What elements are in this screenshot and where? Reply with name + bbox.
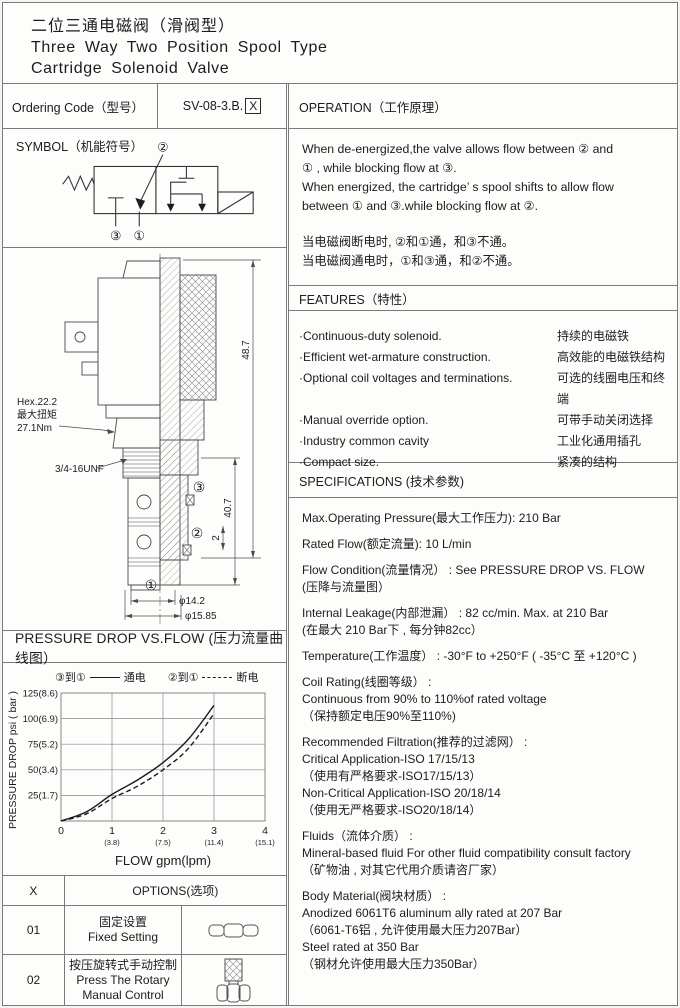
page-title-en-2: Cartridge Solenoid Valve bbox=[31, 58, 667, 79]
hex-nut-icon bbox=[207, 921, 261, 939]
spec-filtration: Recommended Filtration(推荐的过滤网） : Critica… bbox=[302, 734, 667, 819]
operation-zh-line: 当电磁阀断电时, ②和①通，和③不通。 bbox=[302, 233, 669, 252]
option-01-description: 固定设置 Fixed Setting bbox=[65, 906, 181, 954]
y-axis-tick-labels: 125(8.6) 100(6.9) 75(5.2) 50(3.4) 25(1.7… bbox=[23, 689, 58, 802]
options-code-header: X bbox=[3, 876, 65, 905]
y-axis-title: PRESSURE DROP psi ( bar ) bbox=[7, 691, 19, 829]
port-2-label: ② bbox=[157, 140, 168, 155]
thread-label: 3/4-16UNF bbox=[55, 464, 104, 475]
x-axis-title: FLOW gpm(lpm) bbox=[115, 853, 211, 868]
knurled-knob-icon bbox=[212, 957, 256, 1003]
option-01-code: 01 bbox=[3, 906, 65, 954]
operation-zh-line: 当电磁阀通电时，①和③通，和②不通。 bbox=[302, 252, 669, 271]
features-header: FEATURES（特性） bbox=[289, 286, 677, 311]
operation-en-line: When energized, the cartridge’ s spool s… bbox=[302, 178, 669, 197]
connector-hole bbox=[75, 332, 85, 342]
title-block: 二位三通电磁阀（滑阀型） Three Way Two Position Spoo… bbox=[3, 3, 677, 84]
legend-ports-energized: ③到① bbox=[55, 669, 86, 685]
dim-40-7: 40.7 bbox=[223, 498, 234, 518]
connector-tab bbox=[82, 362, 98, 375]
feature-item: ·Optional coil voltages and terminations… bbox=[299, 368, 671, 410]
option-row-01: 01 固定设置 Fixed Setting bbox=[3, 906, 286, 955]
svg-text:50(3.4): 50(3.4) bbox=[28, 765, 58, 776]
feature-item: ·Efficient wet-armature construction. 高效… bbox=[299, 347, 671, 368]
ordering-code-value: SV-08-3.B.X bbox=[158, 84, 286, 128]
svg-text:2: 2 bbox=[160, 825, 166, 837]
chart-curve-deenergized bbox=[61, 714, 214, 822]
option-02-description: 按压旋转式手动控制 Press The Rotary Manual Contro… bbox=[65, 955, 181, 1005]
torque-value-label: 27.1Nm bbox=[17, 423, 52, 434]
svg-text:0: 0 bbox=[58, 825, 64, 837]
legend-ports-deenergized: ②到① bbox=[168, 669, 199, 685]
svg-text:3: 3 bbox=[211, 825, 217, 837]
option-01-zh: 固定设置 bbox=[99, 915, 147, 930]
specifications-body: Max.Operating Pressure(最大工作压力): 210 Bar … bbox=[289, 498, 677, 973]
hex-size-label: Hex.22.2 bbox=[17, 397, 57, 408]
section-hatched-half bbox=[160, 258, 216, 585]
pressure-drop-header: PRESSURE DROP VS.FLOW (压力流量曲线图） bbox=[3, 631, 286, 663]
svg-text:(7.5): (7.5) bbox=[155, 838, 171, 847]
left-column: Ordering Code（型号） SV-08-3.B.X SYMBOL（机能符… bbox=[3, 84, 287, 1005]
spring-symbol bbox=[63, 176, 94, 190]
option-02-icon-cell bbox=[181, 955, 286, 1005]
page-title-en-1: Three Way Two Position Spool Type bbox=[31, 37, 667, 58]
pressure-drop-chart: 125(8.6) 100(6.9) 75(5.2) 50(3.4) 25(1.7… bbox=[3, 685, 287, 876]
operation-header: OPERATION（工作原理） bbox=[289, 84, 677, 129]
symbol-port-labels: ② ③ ① bbox=[110, 140, 169, 243]
option-01-icon-cell bbox=[181, 906, 286, 954]
right-column: OPERATION（工作原理） When de-energized,the va… bbox=[289, 84, 677, 1005]
operation-en-line: When de-energized,the valve allows flow … bbox=[302, 140, 669, 159]
page-title-zh: 二位三通电磁阀（滑阀型） bbox=[31, 12, 667, 36]
options-header-row: X OPTIONS(选项) bbox=[3, 876, 286, 906]
chart-grid bbox=[61, 693, 265, 821]
options-title: OPTIONS(选项) bbox=[65, 876, 286, 905]
feature-item: ·Manual override option. 可带手动关闭选择 bbox=[299, 410, 671, 431]
spec-max-pressure: Max.Operating Pressure(最大工作压力): 210 Bar bbox=[302, 510, 667, 527]
spacer bbox=[302, 216, 669, 233]
spec-coil-rating: Coil Rating(线圈等级） : Continuous from 90% … bbox=[302, 674, 667, 725]
option-02-code: 02 bbox=[3, 955, 65, 1005]
dashed-line-swatch bbox=[202, 677, 232, 678]
ordering-code-row: Ordering Code（型号） SV-08-3.B.X bbox=[3, 84, 286, 129]
legend-item-deenergized: ②到① 断电 bbox=[168, 669, 259, 685]
dim-48-7: 48.7 bbox=[241, 340, 252, 360]
solid-line-swatch bbox=[90, 677, 120, 678]
ordering-code-prefix: SV-08-3.B. bbox=[183, 99, 243, 113]
port-3-label: ③ bbox=[110, 228, 121, 243]
chart-curve-energized bbox=[61, 705, 214, 821]
leader-arrowheads bbox=[107, 429, 127, 464]
svg-text:75(5.2): 75(5.2) bbox=[28, 740, 58, 751]
svg-text:(11.4): (11.4) bbox=[204, 838, 224, 847]
legend-state-deenergized: 断电 bbox=[236, 669, 258, 685]
svg-text:4: 4 bbox=[262, 825, 268, 837]
features-list: ·Continuous-duty solenoid. 持续的电磁铁 ·Effic… bbox=[289, 311, 677, 463]
svg-text:100(6.9): 100(6.9) bbox=[23, 714, 58, 725]
option-row-02: 02 按压旋转式手动控制 Press The Rotary Manual Con… bbox=[3, 955, 286, 1005]
spec-flow-condition: Flow Condition(流量情况） : See PRESSURE DROP… bbox=[302, 562, 667, 596]
svg-text:(15.1): (15.1) bbox=[255, 838, 275, 847]
spec-internal-leakage: Internal Leakage(内部泄漏） : 82 cc/min. Max.… bbox=[302, 605, 667, 639]
two-column-layout: Ordering Code（型号） SV-08-3.B.X SYMBOL（机能符… bbox=[3, 84, 677, 1005]
drawing-port-1: ① bbox=[145, 577, 158, 593]
max-torque-label-zh: 最大扭矩 bbox=[17, 408, 57, 421]
legend-item-energized: ③到① 通电 bbox=[55, 669, 146, 685]
pressure-drop-chart-section: ③到① 通电 ②到① 断电 bbox=[3, 663, 286, 876]
x-axis-tick-labels: 0 1 2 3 4 bbox=[58, 825, 268, 837]
hex-nut-profile bbox=[113, 418, 160, 448]
symbol-lines bbox=[63, 155, 254, 227]
option-02-en: Press The Rotary Manual Control bbox=[65, 973, 181, 1003]
ordering-code-label: Ordering Code（型号） bbox=[3, 84, 158, 128]
svg-text:25(1.7): 25(1.7) bbox=[28, 791, 58, 802]
drawing-port-3: ③ bbox=[193, 479, 206, 495]
option-01-en: Fixed Setting bbox=[88, 930, 158, 945]
solenoid-outline-half bbox=[65, 261, 160, 590]
feature-item: ·Continuous-duty solenoid. 持续的电磁铁 bbox=[299, 326, 671, 347]
port-1-label: ① bbox=[134, 228, 145, 243]
operation-en-line: ① , while blocking flow at ③. bbox=[302, 159, 669, 178]
symbol-section: SYMBOL（机能符号） bbox=[3, 129, 286, 248]
svg-text:125(8.6): 125(8.6) bbox=[23, 689, 58, 700]
legend-state-energized: 通电 bbox=[124, 669, 146, 685]
port-hole-upper bbox=[137, 495, 151, 509]
ordering-code-x: X bbox=[245, 98, 261, 114]
spec-rated-flow: Rated Flow(额定流量): 10 L/min bbox=[302, 536, 667, 553]
cartridge-body bbox=[128, 478, 160, 585]
datasheet-page: 二位三通电磁阀（滑阀型） Three Way Two Position Spoo… bbox=[2, 2, 678, 1006]
svg-text:(3.8): (3.8) bbox=[104, 838, 120, 847]
drawing-port-2: ② bbox=[191, 525, 204, 541]
cross-section-drawing-section: Hex.22.2 最大扭矩 27.1Nm 3/4-16UNF 48.7 40.7… bbox=[3, 248, 286, 631]
coil-sleeve-section bbox=[180, 275, 216, 400]
x-axis-lpm-labels: (3.8) (7.5) (11.4) (15.1) bbox=[104, 838, 275, 847]
spec-temperature: Temperature(工作温度） : -30°F to +250°F ( -3… bbox=[302, 648, 667, 665]
connector-plug bbox=[65, 322, 98, 352]
valve-cross-section-drawing: Hex.22.2 最大扭矩 27.1Nm 3/4-16UNF 48.7 40.7… bbox=[3, 250, 287, 628]
svg-text:1: 1 bbox=[109, 825, 115, 837]
spec-fluids: Fluids（流体介质） : Mineral-based fluid For o… bbox=[302, 828, 667, 879]
valve-schematic-symbol: ② ③ ① bbox=[33, 137, 273, 247]
dim-2: 2 bbox=[211, 535, 222, 541]
dim-dia-15-85: φ15.85 bbox=[185, 611, 217, 622]
operation-en-line: between ① and ③.while blocking flow at ②… bbox=[302, 197, 669, 216]
feature-item: ·Industry common cavity 工业化通用插孔 bbox=[299, 431, 671, 452]
port-hole-lower bbox=[137, 535, 151, 549]
options-table: X OPTIONS(选项) 01 固定设置 Fixed Setting bbox=[3, 876, 286, 1005]
chart-legend: ③到① 通电 ②到① 断电 bbox=[55, 669, 258, 685]
thread-section bbox=[123, 448, 160, 478]
option-02-zh: 按压旋转式手动控制 bbox=[69, 958, 177, 973]
spec-body-material: Body Material(阀块材质） : Anodized 6061T6 al… bbox=[302, 888, 667, 973]
operation-text: When de-energized,the valve allows flow … bbox=[289, 129, 677, 286]
dim-dia-14-2: φ14.2 bbox=[179, 596, 205, 607]
